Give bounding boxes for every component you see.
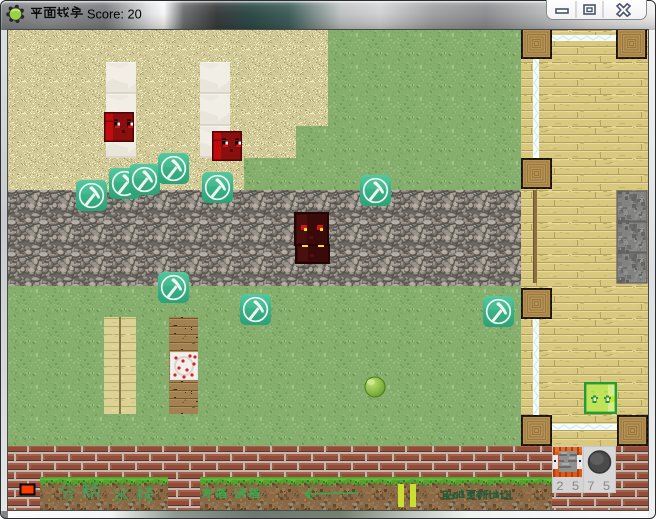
svg-text:7 5: 7 5: [587, 479, 610, 494]
svg-text:Score: 20: Score: 20: [87, 7, 142, 22]
svg-text:2 5: 2 5: [556, 479, 579, 494]
